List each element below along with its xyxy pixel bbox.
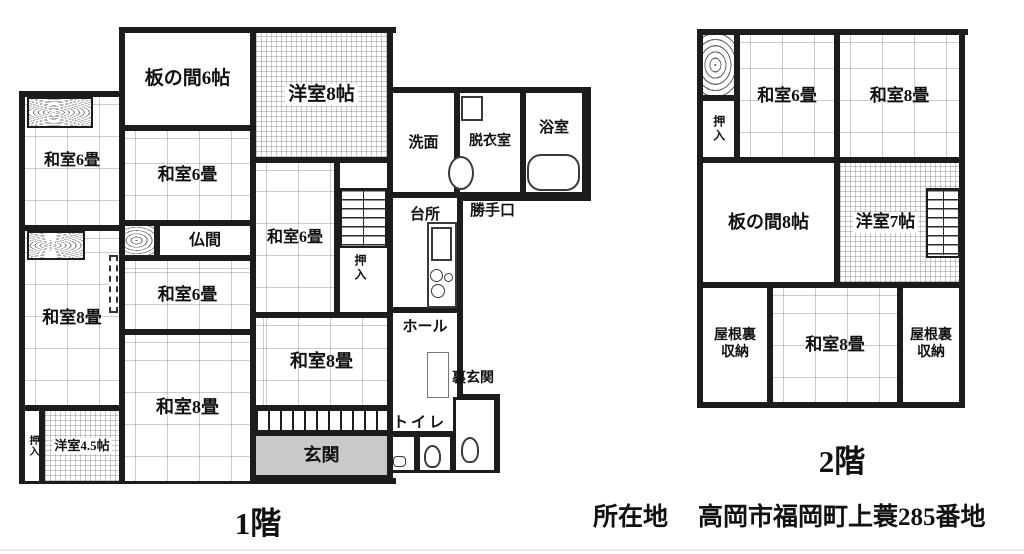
floor2-caption: 2階: [794, 436, 890, 481]
wall-segment: [585, 87, 591, 201]
room-label: トイレ: [393, 411, 447, 432]
address-line: 所在地 高岡市福岡町上蓑285番地: [593, 503, 986, 533]
room-label: 裏玄関: [452, 367, 494, 387]
room-label: 洋室8帖: [285, 84, 358, 107]
room-label: 和室6畳: [267, 228, 323, 247]
room-label: 和室8畳: [290, 351, 353, 373]
address-value: 高岡市福岡町上蓑285番地: [698, 503, 986, 533]
room-washitsu-6-mid-1f: 和室6畳: [122, 128, 253, 223]
room-label: 和室6畳: [757, 86, 817, 106]
room-yoshitsu-8-1f: 洋室8帖: [253, 30, 390, 160]
room-label: 和室6畳: [158, 165, 218, 185]
closet-woodgrain: [27, 231, 85, 260]
toilet-room-basin-1f: [390, 434, 417, 473]
room-oshiire-2f: 押入: [700, 98, 737, 160]
room-yaneura-left-2f: 屋根裏収納: [700, 285, 770, 405]
room-label: 板の間8帖: [728, 212, 809, 234]
room-label: 押入: [26, 435, 38, 457]
stairs-direction-line: [363, 190, 364, 246]
entrance-step-stripes: [253, 408, 390, 433]
room-label: 和室8畳: [805, 335, 865, 355]
room-label: 洗面: [408, 134, 438, 152]
room-label: 板の間6帖: [145, 68, 231, 91]
room-label: ホール: [402, 318, 447, 336]
washer-icon: [461, 96, 483, 121]
stove-burner-icon: [431, 284, 445, 298]
room-itanoma-8-2f: 板の間8帖: [700, 160, 837, 285]
room-yoshitsu-4-5-1f: 洋室4.5帖: [42, 408, 122, 484]
stairs-direction-line: [943, 191, 944, 255]
room-label: 押入: [711, 115, 725, 143]
room-label: 屋根裏収納: [711, 328, 759, 362]
room-label: 押入: [352, 254, 369, 282]
sink-icon: [448, 156, 474, 190]
room-label: 仏間: [189, 231, 221, 250]
scan-artifact-line: [0, 549, 1024, 551]
room-label: 和室6畳: [158, 285, 218, 305]
floorplan-document: 板の間6帖 洋室8帖 和室6畳 和室8畳 押入 洋室4.5帖 和室6畳 仏間 和…: [0, 0, 1024, 554]
room-washitsu-6-center-1f: 和室6畳: [122, 258, 253, 332]
closet-woodgrain: [122, 223, 157, 258]
bathtub-icon: [527, 154, 580, 191]
room-label: 和室8畳: [42, 308, 102, 328]
room-genkan-1f: 玄関: [253, 433, 390, 478]
toilet-icon: [424, 445, 441, 468]
room-label: 屋根裏収納: [907, 328, 955, 362]
room-washitsu-8-top-2f: 和室8畳: [837, 32, 962, 160]
room-label: 和室6畳: [44, 151, 100, 170]
room-label: 和室8畳: [156, 397, 219, 419]
room-label: 洋室4.5帖: [52, 438, 111, 454]
stove-burner-icon: [444, 273, 453, 282]
room-itanoma-6-1f: 板の間6帖: [122, 30, 253, 128]
kitchen-sink-icon: [431, 227, 452, 261]
room-washitsu-6-2f: 和室6畳: [737, 32, 837, 160]
room-yaneura-right-2f: 屋根裏収納: [900, 285, 962, 405]
room-label: 和室8畳: [870, 86, 930, 106]
room-label: 勝手口: [470, 199, 515, 220]
room-label: 玄関: [304, 445, 340, 467]
room-washitsu-8-bottom-2f: 和室8畳: [770, 285, 900, 405]
room-washitsu-6-right-1f: 和室6畳: [253, 160, 337, 315]
room-washitsu-8-mid-1f: 和室8畳: [122, 332, 253, 484]
room-label: 浴室: [539, 119, 569, 137]
room-senmen-1f: 洗面: [390, 90, 457, 195]
floor1-caption: 1階: [210, 498, 306, 543]
closet-woodgrain: [27, 97, 93, 128]
room-oshiire-bottomleft-1f: 押入: [22, 408, 42, 484]
dashed-partition: [109, 255, 118, 313]
room-label: 脱衣室: [469, 134, 511, 151]
back-entrance-step: [427, 352, 449, 398]
room-label: 洋室7帖: [853, 212, 919, 232]
stove-burner-icon: [430, 269, 443, 282]
room-butsuma-1f: 仏間: [157, 223, 253, 258]
closet-woodgrain: [700, 32, 737, 98]
room-washitsu-8-right-1f: 和室8畳: [253, 315, 390, 408]
address-label: 所在地: [593, 503, 668, 533]
toilet-icon: [461, 437, 479, 463]
hand-basin-icon: [393, 456, 406, 467]
